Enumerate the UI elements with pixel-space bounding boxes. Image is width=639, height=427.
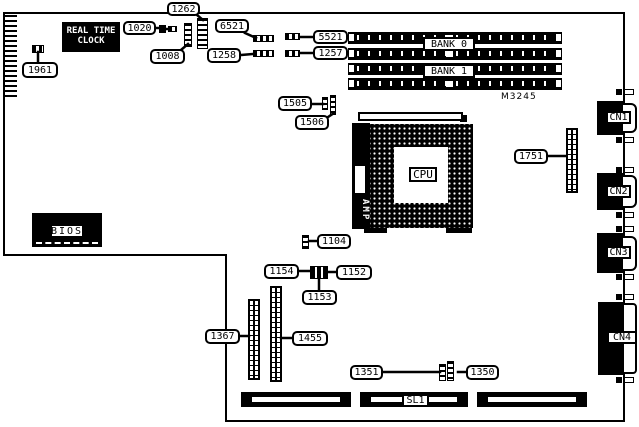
callout-1751-text: 1751 [519, 151, 543, 162]
cn3-label-text: CN3 [609, 247, 627, 258]
sl1-label: SL1 [402, 394, 429, 407]
callout-1008-text: 1008 [155, 51, 179, 62]
callout-1153-text: 1153 [307, 292, 331, 303]
jumper-strip-1505 [322, 97, 328, 110]
slot-contact-stripe [488, 397, 576, 402]
cn2-label-text: CN2 [609, 186, 627, 197]
cn4-label-text: CN4 [613, 332, 631, 343]
mount-tab [616, 212, 622, 218]
jumper-strip-1506 [330, 95, 336, 115]
mount-tab [624, 89, 634, 95]
callout-1152-text: 1152 [342, 267, 366, 278]
bios-chip-label: BIOS [50, 224, 84, 238]
simm-contacts [357, 51, 553, 56]
callout-1154: 1154 [264, 264, 299, 279]
mount-tab [616, 294, 622, 300]
callout-1008: 1008 [150, 49, 185, 64]
silkscreen-model-text: M3245 [501, 92, 537, 102]
expansion-slot-3 [477, 392, 587, 407]
mount-tab [616, 137, 622, 143]
callout-1961-text: 1961 [28, 65, 52, 76]
board-edge-step-horizontal [3, 254, 227, 256]
jumper-strip-1262 [197, 18, 208, 49]
bank0-label: BANK 0 [423, 37, 475, 51]
callout-1257-text: 1257 [318, 48, 342, 59]
bank0-label-text: BANK 0 [431, 39, 467, 50]
mount-tab [624, 167, 634, 173]
jumper-1961 [32, 45, 44, 53]
board-edge-bottom [227, 420, 625, 422]
cpu-socket: CPU [370, 124, 473, 228]
mount-tab [616, 226, 622, 232]
cpu-socket-foot-left [364, 228, 387, 233]
callout-1154-text: 1154 [269, 266, 293, 277]
cpu-socket-foot-right [446, 228, 472, 233]
callout-1506-text: 1506 [300, 117, 324, 128]
mount-tab [616, 274, 622, 280]
callout-1104: 1104 [317, 234, 351, 249]
jumper-1020 [168, 26, 177, 32]
board-edge-top [3, 12, 625, 14]
simm-clip-right [555, 33, 562, 42]
simm-contacts [357, 81, 553, 86]
callout-1961: 1961 [22, 62, 58, 78]
amp-window [355, 166, 365, 193]
mount-tab [616, 377, 622, 383]
jumper-5521 [285, 33, 300, 40]
cn1-label-text: CN1 [609, 112, 627, 123]
jumper-1350 [447, 361, 454, 381]
expansion-slot-1 [241, 392, 351, 407]
callout-6521: 6521 [215, 19, 249, 33]
callout-1262: 1262 [167, 2, 200, 16]
jumper-6521 [253, 35, 274, 42]
cn3-label: CN3 [606, 246, 631, 259]
simm-clip-left [348, 49, 355, 58]
header-strip-1455 [270, 286, 282, 382]
callout-1152: 1152 [336, 265, 372, 280]
callout-5521-text: 5521 [318, 32, 342, 43]
simm-notch [446, 81, 453, 87]
header-strip-1367 [248, 299, 260, 380]
mount-tab [624, 377, 634, 383]
callout-1257: 1257 [313, 46, 348, 60]
sl1-label-text: SL1 [406, 395, 424, 406]
simm-clip-right [555, 79, 562, 88]
edge-connector [4, 15, 17, 98]
callout-5521: 5521 [313, 30, 348, 44]
rtc-chip-label-line1: REAL TIME [62, 26, 120, 36]
rtc-chip-label-line2: CLOCK [62, 36, 120, 46]
callout-6521-text: 6521 [220, 21, 244, 32]
cn4-label: CN4 [607, 331, 637, 344]
jumper-block-1153 [310, 266, 328, 279]
mount-tab [616, 89, 622, 95]
callout-1258-text: 1258 [212, 50, 236, 61]
bios-socket-pins [36, 242, 98, 244]
regulator-bar [358, 112, 463, 121]
jumper-strip-1008 [184, 23, 192, 47]
rtc-chip: REAL TIME CLOCK [62, 22, 120, 52]
callout-1020-text: 1020 [127, 23, 151, 34]
jumper-1020-pad [159, 25, 166, 33]
callout-1104-text: 1104 [322, 236, 346, 247]
callout-1367-text: 1367 [210, 331, 234, 342]
jumper-1257 [285, 50, 300, 57]
callout-1505: 1505 [278, 96, 312, 111]
jumper-1351 [439, 364, 446, 381]
callout-1367: 1367 [205, 329, 240, 344]
simm-notch [446, 51, 453, 57]
callout-1350-text: 1350 [470, 367, 494, 378]
mount-tab [624, 137, 634, 143]
bank1-label-text: BANK 1 [431, 66, 467, 77]
callout-1506: 1506 [295, 115, 329, 130]
simm-clip-left [348, 33, 355, 42]
simm-slot-4 [348, 78, 562, 90]
simm-clip-right [555, 64, 562, 73]
jumper-1258 [253, 50, 274, 57]
callout-1751: 1751 [514, 149, 548, 164]
mount-tab [624, 226, 634, 232]
header-strip-1751 [566, 128, 578, 193]
simm-clip-left [348, 79, 355, 88]
bank1-label: BANK 1 [423, 64, 475, 78]
callout-1351: 1351 [350, 365, 383, 380]
amp-label: AMP [352, 191, 370, 229]
callout-1020: 1020 [123, 21, 156, 35]
jumper-1104 [302, 235, 309, 249]
callout-1350: 1350 [466, 365, 499, 380]
cpu-label: CPU [409, 167, 437, 182]
mount-tab [624, 274, 634, 280]
simm-clip-left [348, 64, 355, 73]
callout-1455-text: 1455 [298, 333, 322, 344]
bios-chip: BIOS [32, 213, 102, 247]
cn1-label: CN1 [606, 111, 631, 124]
slot-contact-stripe [252, 397, 340, 402]
callout-1455: 1455 [292, 331, 328, 346]
bios-chip-label-text: BIOS [51, 226, 83, 237]
motherboard-diagram: REAL TIME CLOCK BIOS BANK [0, 0, 639, 427]
cpu-label-text: CPU [413, 168, 433, 181]
simm-clip-right [555, 49, 562, 58]
callout-1505-text: 1505 [283, 98, 307, 109]
mount-tab [624, 212, 634, 218]
cn2-label: CN2 [606, 185, 631, 198]
mount-tab [624, 294, 634, 300]
rtc-chip-label: REAL TIME CLOCK [62, 22, 120, 46]
callout-1262-text: 1262 [171, 4, 195, 15]
callout-1153: 1153 [302, 290, 337, 305]
amp-regulator: AMP [352, 123, 370, 229]
callout-1258: 1258 [207, 48, 241, 63]
callout-1351-text: 1351 [354, 367, 378, 378]
